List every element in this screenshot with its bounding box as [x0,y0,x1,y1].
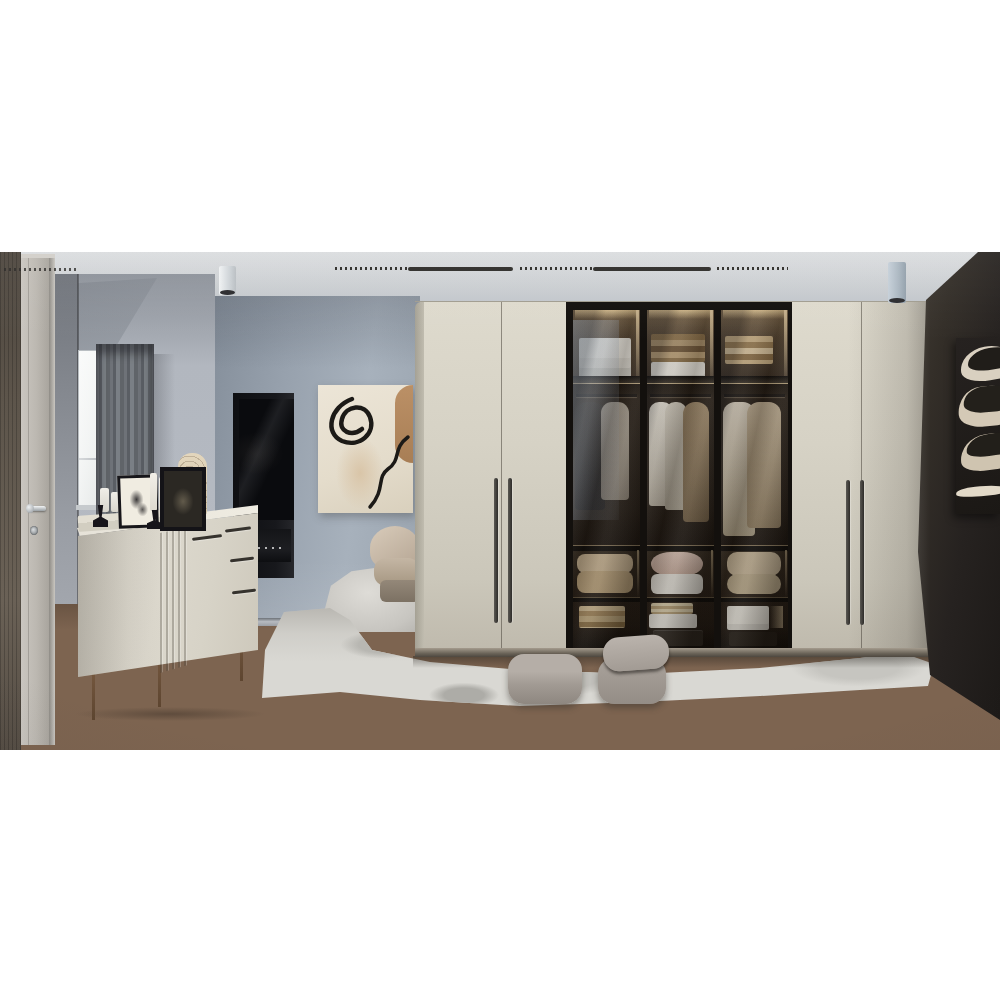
beige-pillow [727,552,781,576]
entry-door [21,258,49,745]
shelf [573,598,640,602]
shelf [647,546,714,551]
shelf [647,598,714,602]
led-strip [636,310,639,376]
canvas-shape [956,484,1000,499]
hanging-rod [650,394,711,397]
floor-pouf [508,654,582,704]
sideboard-shadow [75,707,265,721]
sideboard [75,452,260,727]
canvas-shape [958,341,1000,385]
dark-bin [729,632,777,646]
canvas-shape [956,383,1000,429]
led-strip [784,310,787,376]
storage-box [649,614,697,628]
wardrobe-top-edge [415,301,932,302]
lounge-chair-base [380,580,420,602]
track-light [335,267,790,271]
shelf [721,546,788,551]
floor-pouf-lid [602,634,670,673]
glass-door [721,310,788,648]
led-strip [711,550,713,598]
interior-photo [0,252,1000,750]
shelf [721,376,788,383]
glass-door [573,310,640,648]
taupe-coat [747,402,781,528]
shelf-glow [769,606,783,628]
wardrobe-handle [860,480,864,625]
painting-squiggles [318,385,413,513]
downlight-cylinder [888,262,906,303]
dark-abstract-canvas [956,338,1000,514]
folded-towels [579,606,625,628]
led-strip [637,550,639,598]
wardrobe-floor-shadow [413,656,934,668]
shelf [573,546,640,551]
led-strip [785,550,787,598]
abstract-painting [318,385,413,513]
led-strip [710,310,713,376]
white-folded-linen [651,574,703,594]
folded-stack [651,334,705,362]
glass-door [647,310,714,648]
wardrobe-plinth [415,648,932,657]
blush-pillow [651,552,703,576]
shelf [647,376,714,383]
storage-box [727,606,769,630]
hanging-rod [724,394,785,397]
canvas-shape [958,430,1000,474]
tan-coat [683,402,709,522]
window-reflection [573,320,619,520]
cabinet-glow [649,310,712,319]
cabinet-glow [575,310,638,319]
dark-wood-panel [0,252,21,750]
door-handle-rosette [26,504,34,513]
beige-pillow [727,574,781,594]
folded-pillow [577,571,633,593]
shelf [721,598,788,602]
wardrobe-glass-section [566,302,792,656]
wardrobe-handle [846,480,850,625]
door-jamb [49,258,55,745]
folded-stack [725,336,773,364]
door-gap [501,302,502,650]
sideboard-fluting [160,513,188,673]
taper-candle [150,473,157,511]
wardrobe-handle [494,478,498,623]
door-keyhole [30,526,38,535]
photo-canvas [0,0,1000,1000]
wardrobe [415,298,932,662]
track-light-left [4,268,76,271]
cabinet-glow [723,310,786,319]
downlight-cylinder [219,266,236,295]
framed-art [160,467,206,531]
folded-stack [651,603,693,614]
wardrobe-handle [508,478,512,623]
